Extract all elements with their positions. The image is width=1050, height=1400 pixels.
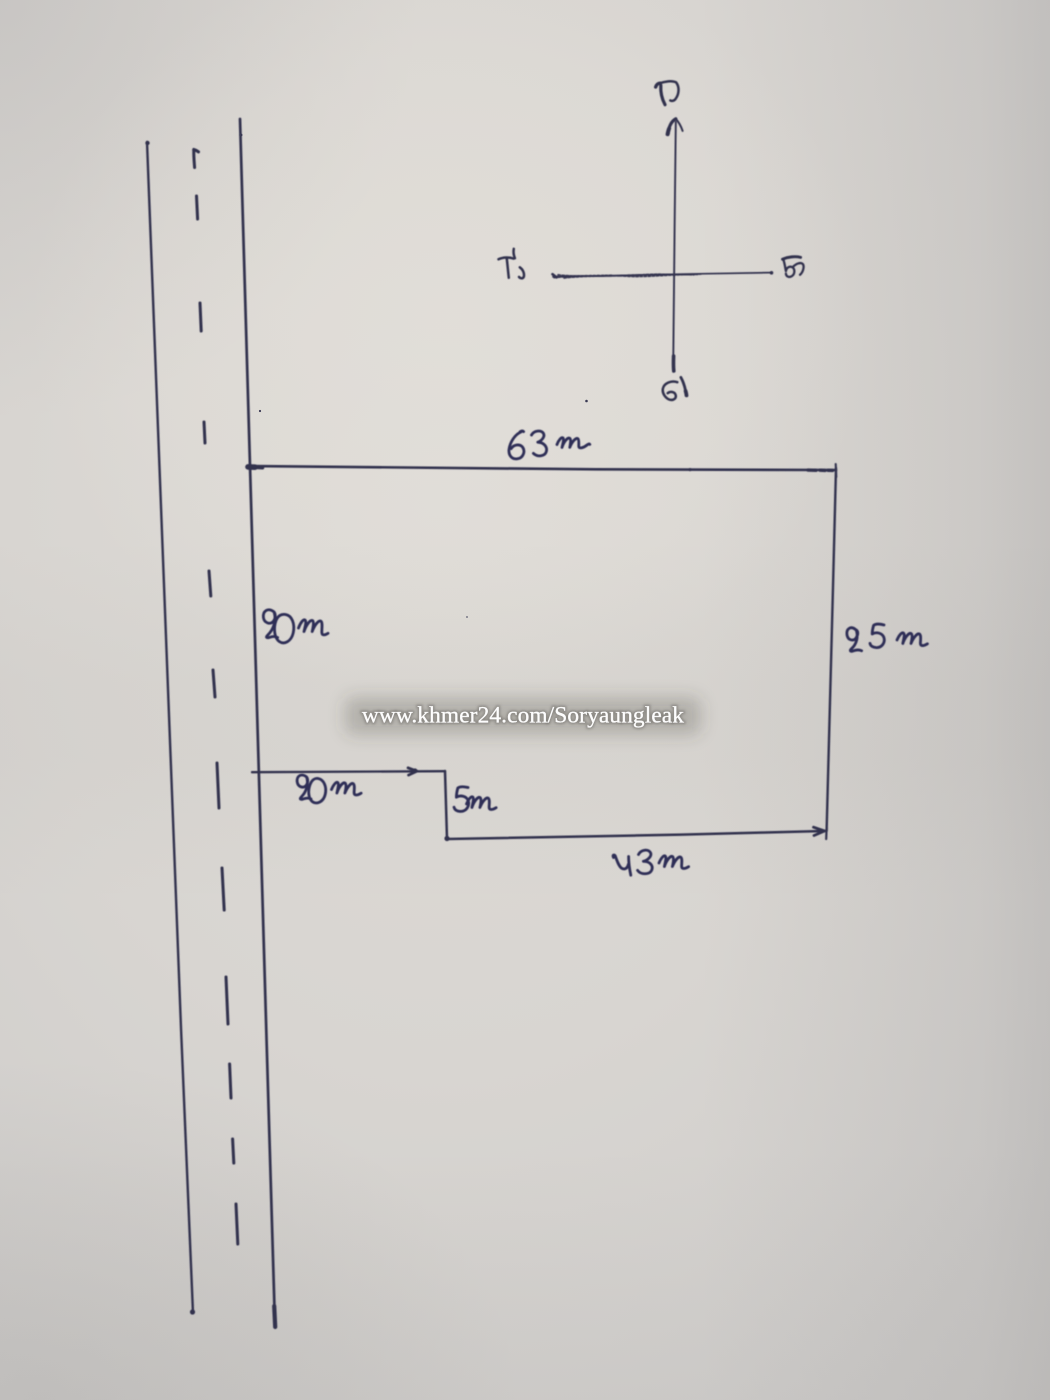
svg-text:www.khmer24.com/Soryaungleak: www.khmer24.com/Soryaungleak: [362, 703, 684, 729]
